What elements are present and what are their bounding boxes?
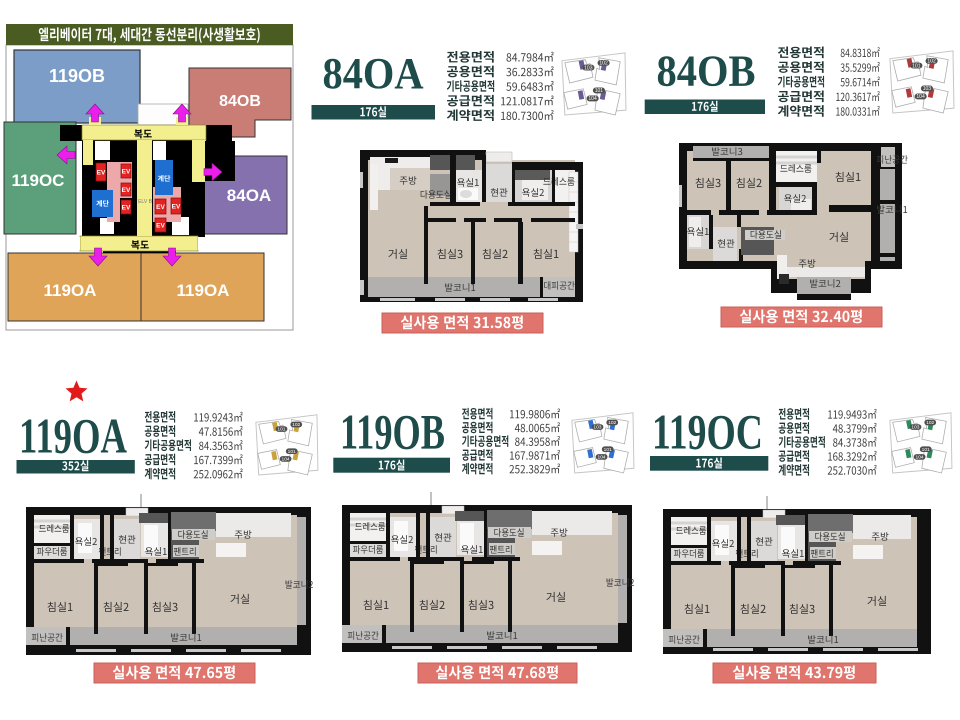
- svg-text:102: 102: [599, 61, 608, 67]
- svg-text:101: 101: [922, 447, 930, 453]
- svg-text:119OC: 119OC: [12, 171, 65, 190]
- svg-text:119OA: 119OA: [177, 281, 230, 300]
- svg-text:104: 104: [598, 455, 606, 461]
- svg-text:101: 101: [595, 88, 604, 94]
- svg-text:EV: EV: [156, 204, 165, 211]
- svg-text:104: 104: [588, 96, 597, 102]
- svg-text:101: 101: [604, 447, 612, 453]
- svg-text:102: 102: [927, 59, 936, 65]
- svg-text:119OB: 119OB: [340, 403, 445, 459]
- svg-text:EV: EV: [122, 187, 131, 194]
- svg-text:84OB: 84OB: [657, 47, 756, 96]
- svg-text:104: 104: [282, 457, 290, 463]
- svg-text:EV: EV: [122, 168, 131, 175]
- svg-text:84OB: 84OB: [219, 93, 261, 110]
- svg-text:102: 102: [926, 420, 934, 426]
- svg-text:EV: EV: [156, 222, 165, 229]
- svg-text:EV: EV: [122, 204, 131, 211]
- svg-text:119OA: 119OA: [44, 281, 97, 300]
- svg-text:84OA: 84OA: [227, 186, 271, 205]
- svg-text:103: 103: [923, 86, 932, 92]
- svg-text:103: 103: [584, 65, 593, 71]
- svg-text:119OB: 119OB: [49, 66, 105, 86]
- svg-text:101: 101: [288, 449, 296, 455]
- svg-text:102: 102: [608, 420, 616, 426]
- svg-text:103: 103: [593, 425, 601, 431]
- svg-text:101: 101: [277, 427, 285, 433]
- svg-text:84OA: 84OA: [323, 49, 424, 98]
- svg-text:ELV B: ELV B: [138, 199, 152, 205]
- svg-text:104: 104: [916, 455, 924, 461]
- svg-text:119OC: 119OC: [652, 403, 763, 459]
- svg-text:EV: EV: [97, 169, 106, 176]
- svg-text:101: 101: [912, 63, 921, 69]
- svg-text:102: 102: [292, 422, 300, 428]
- svg-text:119OA: 119OA: [19, 408, 127, 464]
- svg-text:EV: EV: [172, 203, 181, 210]
- svg-text:104: 104: [916, 94, 925, 100]
- svg-text:103: 103: [911, 425, 919, 431]
